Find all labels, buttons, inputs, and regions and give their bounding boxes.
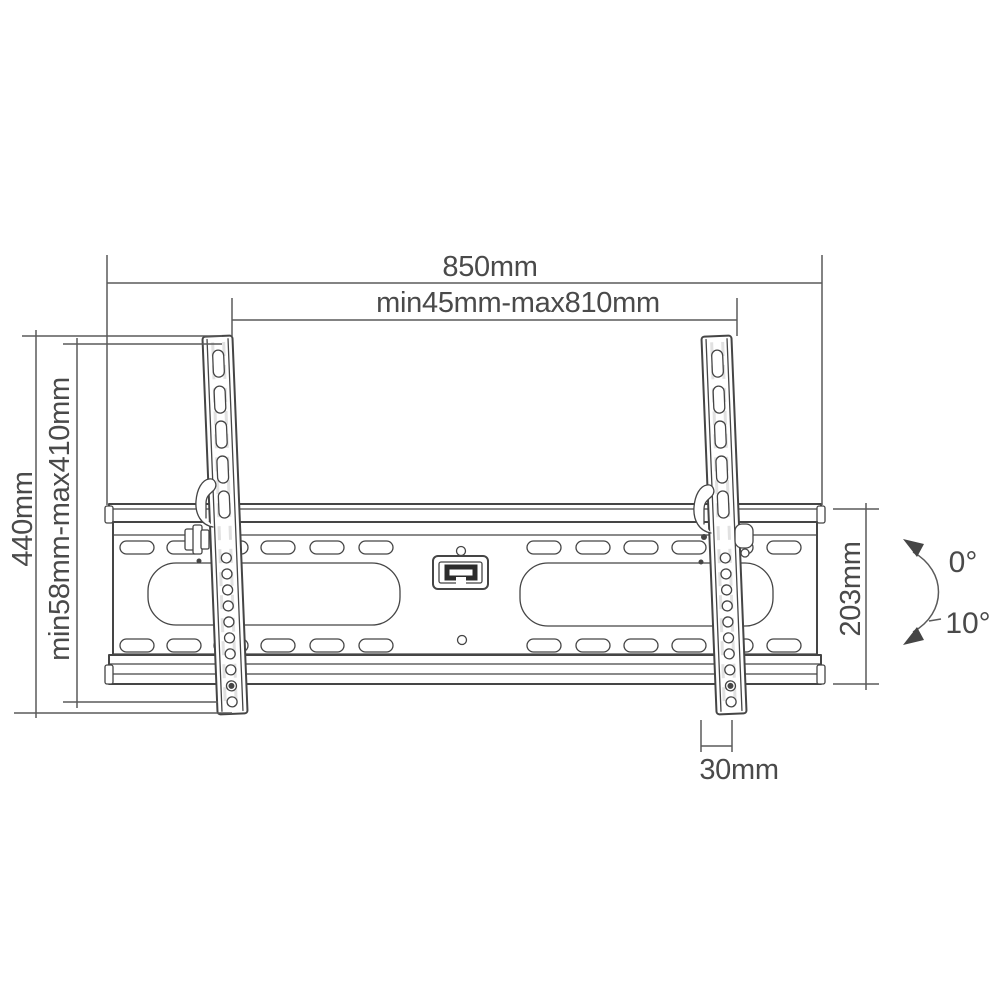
rail-end-cap xyxy=(817,506,825,523)
drawing-canvas: 850mm min45mm-max810mm 440mm min58mm-max… xyxy=(0,0,1000,1000)
wall-plate-height-label: 203mm xyxy=(835,541,867,636)
tilt-indicator: 0° 10° xyxy=(903,539,991,645)
mounting-hole xyxy=(457,547,466,556)
tilt-arrow-up-icon xyxy=(903,539,924,557)
vertical-adjust-range-label: min58mm-max410mm xyxy=(44,377,76,661)
rail-end-cap xyxy=(817,665,825,684)
bracket-arm-width-label: 30mm xyxy=(699,754,778,786)
dimension-horizontal-adjust-range: min45mm-max810mm xyxy=(232,287,737,336)
tv-mount-technical-drawing: 850mm min45mm-max810mm 440mm min58mm-max… xyxy=(0,0,1000,1000)
overall-height-label: 440mm xyxy=(7,471,39,566)
tilt-down-label: 10° xyxy=(945,607,990,640)
horizontal-adjust-range-label: min45mm-max810mm xyxy=(376,287,660,319)
rail-end-cap xyxy=(105,665,113,684)
center-lock xyxy=(433,556,488,589)
dimension-bracket-arm-width: 30mm xyxy=(699,720,778,786)
mounting-hole xyxy=(458,636,467,645)
tilt-arrow-down-icon xyxy=(903,627,924,645)
tilt-dash xyxy=(929,619,941,621)
overall-width-label: 850mm xyxy=(442,251,537,283)
rail-end-cap xyxy=(105,506,113,523)
tilt-up-label: 0° xyxy=(949,546,978,579)
dimension-wall-plate-height: 203mm xyxy=(833,503,879,690)
